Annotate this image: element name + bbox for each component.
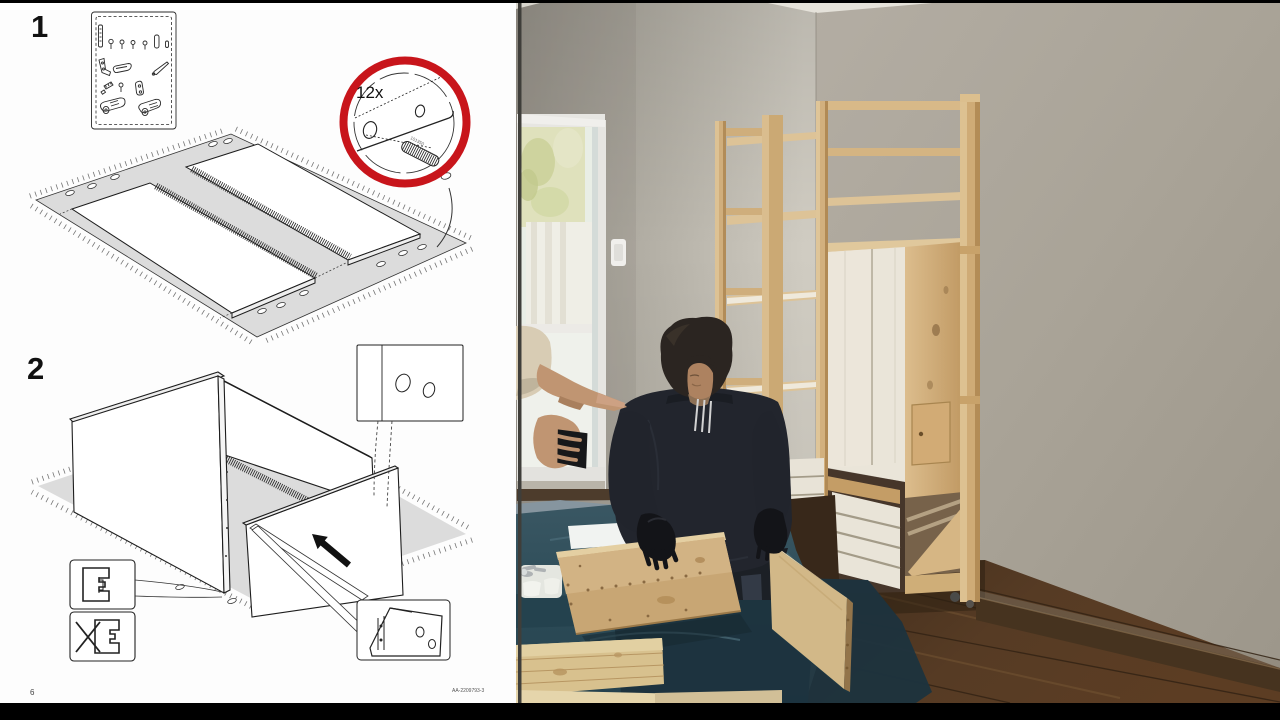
svg-text:1: 1 (31, 9, 48, 44)
svg-text:AA-2209793-3: AA-2209793-3 (452, 688, 484, 694)
svg-text:6: 6 (30, 688, 35, 697)
svg-text:2: 2 (27, 351, 44, 386)
svg-text:12x: 12x (356, 83, 384, 102)
